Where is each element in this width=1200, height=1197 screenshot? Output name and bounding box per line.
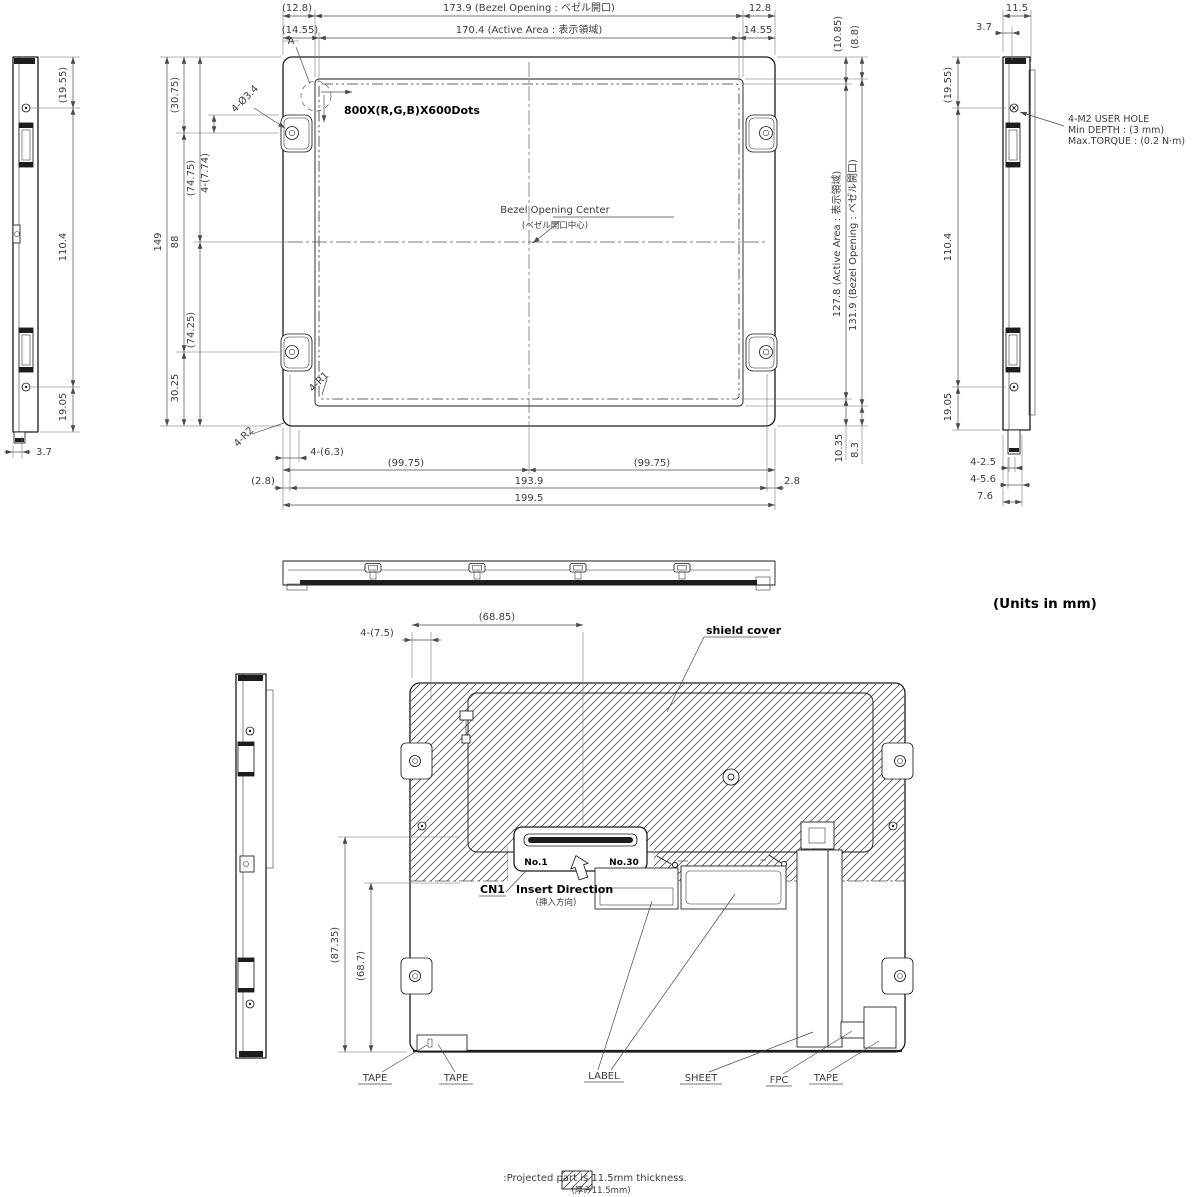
shield-cover-label: shield cover xyxy=(706,624,782,637)
bezel-center-label: Bezel Opening Center xyxy=(500,205,610,216)
units-note: (Units in mm) xyxy=(993,596,1097,612)
user-hole-note-line1: 4-M2 USER HOLE xyxy=(1068,114,1149,125)
front-view: A 800X(R,G,B)X600Dots Bezel Opening Cent… xyxy=(153,2,868,510)
dim-149: 149 xyxy=(153,232,164,251)
dim-2-8-ref: (2.8) xyxy=(251,476,275,487)
dim-11-5: 11.5 xyxy=(1006,3,1028,14)
dim-193-9: 193.9 xyxy=(515,476,544,487)
right-side-view: 11.5 3.7 (19.55) 110.4 19.05 4-M2 USER H… xyxy=(943,3,1185,506)
top-view xyxy=(283,561,775,590)
insert-direction-label: Insert Direction xyxy=(516,883,613,896)
dim-active-height: 127.8 (Active Area : 表示領域) xyxy=(830,171,843,318)
dim-10-85: (10.85) xyxy=(833,16,844,53)
dim-6-3: 4-(6.3) xyxy=(310,447,344,458)
dim-3-7-right: 3.7 xyxy=(976,22,992,33)
dim-7-5: 4-(7.5) xyxy=(360,628,394,639)
front-dims-left: 149 (30.75) 88 30.25 (74.75) (74.25) 4-(… xyxy=(153,57,300,426)
dim-19-55: (19.55) xyxy=(58,67,69,104)
dim-8-3: 8.3 xyxy=(850,442,861,458)
dim-99-75-left: (99.75) xyxy=(388,458,425,469)
dim-12-8: 12.8 xyxy=(749,3,771,14)
dim-14-55-ref: (14.55) xyxy=(282,25,319,36)
r2-callout: 4-R2 xyxy=(232,425,256,449)
dim-99-75-right: (99.75) xyxy=(634,458,671,469)
dim-active-width: 170.4 (Active Area : 表示領域) xyxy=(456,23,603,36)
left-side-view: (19.55) 110.4 19.05 3.7 xyxy=(4,57,80,458)
tape1-label: TAPE xyxy=(362,1073,388,1084)
footer-note: :Projected part is 11.5mm thickness. (厚み… xyxy=(503,1171,686,1196)
dim-74-25: (74.25) xyxy=(186,312,197,349)
insert-direction-label-jp: (挿入方向) xyxy=(536,897,577,908)
dim-14-55: 14.55 xyxy=(744,25,773,36)
cn1-label: CN1 xyxy=(480,883,505,896)
dim-19-05-right: 19.05 xyxy=(943,393,954,422)
rear-view: No.1 No.30 xyxy=(330,612,913,1086)
dim-110-4: 110.4 xyxy=(58,233,69,262)
dim-4-5-6: 4-5.6 xyxy=(970,474,996,485)
dim-68-7: (68.7) xyxy=(356,951,367,981)
tape-strip xyxy=(417,1035,467,1051)
dim-74-75: (74.75) xyxy=(186,160,197,197)
user-hole-note: 4-M2 USER HOLE Min DEPTH : (3 mm) Max.TO… xyxy=(1020,112,1185,147)
dim-7-74: 4-(7.74) xyxy=(200,153,211,193)
fpc-label: FPC xyxy=(770,1075,789,1086)
user-hole-note-line3: Max.TORQUE : (0.2 N·m) xyxy=(1068,136,1185,147)
dim-4-2-5: 4-2.5 xyxy=(970,457,996,468)
user-hole-note-line2: Min DEPTH : (3 mm) xyxy=(1068,125,1164,136)
screw-posts xyxy=(365,564,690,580)
pin1-label: No.1 xyxy=(524,858,547,868)
footer-note-line2: (厚み11.5mm) xyxy=(571,1186,630,1196)
dim-3-7: 3.7 xyxy=(36,447,52,458)
dim-bezel-width: 173.9 (Bezel Opening : ベゼル開口) xyxy=(443,2,615,14)
rear-side-view xyxy=(236,674,273,1058)
sheet-label: SHEET xyxy=(685,1073,719,1084)
label-boxes xyxy=(595,866,786,909)
hole-callout: 4-Ø3.4 xyxy=(229,83,261,115)
dim-19-05: 19.05 xyxy=(58,393,69,422)
dim-30-75: (30.75) xyxy=(170,77,181,114)
tape3-label: TAPE xyxy=(813,1073,839,1084)
drawing-svg: (19.55) 110.4 19.05 3.7 xyxy=(0,0,1200,1197)
dim-7-6: 7.6 xyxy=(977,491,993,502)
lcd-module-drawing: (19.55) 110.4 19.05 3.7 xyxy=(0,0,1200,1197)
label-label: LABEL xyxy=(588,1071,620,1082)
pin30-label: No.30 xyxy=(609,858,639,868)
dim-12-8-ref: (12.8) xyxy=(282,3,312,14)
dim-30-25: 30.25 xyxy=(170,374,181,403)
dim-8-8: (8.8) xyxy=(850,25,861,49)
dim-110-4-right: 110.4 xyxy=(943,233,954,262)
dim-19-55-right: (19.55) xyxy=(943,67,954,104)
dim-10-35: 10.35 xyxy=(834,434,845,463)
dim-2-8: 2.8 xyxy=(784,476,800,487)
dim-199-5: 199.5 xyxy=(515,493,544,504)
dim-88: 88 xyxy=(170,236,181,249)
resolution-label: 800X(R,G,B)X600Dots xyxy=(344,104,480,117)
dim-87-35: (87.35) xyxy=(330,927,341,964)
tape2-label: TAPE xyxy=(443,1073,469,1084)
footer-note-line1: :Projected part is 11.5mm thickness. xyxy=(503,1173,686,1184)
dim-bezel-height: 131.9 (Bezel Opening : ベゼル開口) xyxy=(847,159,859,331)
dim-68-85: (68.85) xyxy=(479,612,516,623)
